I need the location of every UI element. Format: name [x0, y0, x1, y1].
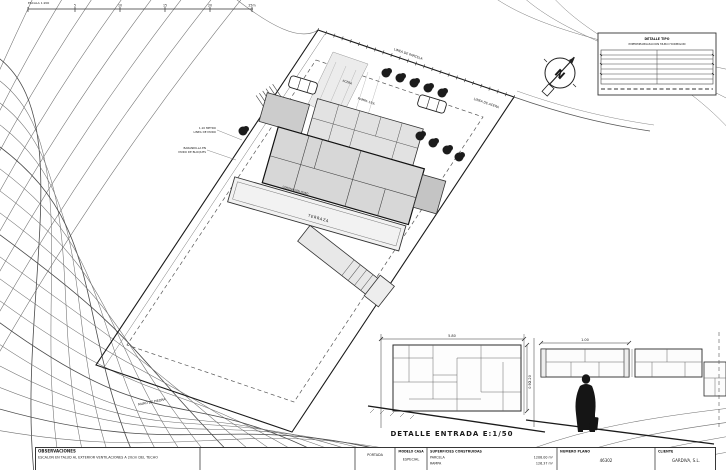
waterproofing-detail-box: DETALLE TIPO IMPERMEABILIZACION MURO HOR…	[598, 33, 716, 95]
scale-caption: ESCALA 1:200	[28, 1, 49, 5]
detail-entrada-title: DETALLE ENTRADA E:1/50	[390, 430, 513, 438]
elevation-entrance-wall: 5.80 2.20	[368, 334, 545, 432]
portada-label: PORTADA	[367, 453, 383, 457]
cliente-value: GARDIVA, S.L.	[672, 458, 700, 463]
rampa-label: RAMPA 15%	[357, 96, 375, 106]
shrub-symbol	[459, 152, 465, 158]
linea-acera-label: LINEA DE ACERA	[473, 97, 500, 110]
contour-line	[0, 166, 169, 470]
shrub-symbol	[428, 83, 434, 89]
superficies-row-name: PARCELA	[430, 456, 445, 460]
contour-line	[0, 0, 244, 358]
shrub-symbol	[420, 131, 426, 137]
contour-line	[0, 0, 34, 78]
shrub-symbol	[442, 88, 448, 94]
contour-line	[0, 56, 41, 470]
ground-line	[526, 420, 714, 444]
north-arrow: N	[542, 57, 576, 96]
wall-width-dim: 5.80	[448, 334, 456, 338]
superficies-row-name: RAMPA	[430, 462, 442, 466]
shrub-symbol	[400, 73, 406, 79]
person-silhouette	[576, 374, 599, 432]
svg-text:IMPERMEABILIZACION MURO HORMIG: IMPERMEABILIZACION MURO HORMIGON	[628, 42, 685, 46]
svg-text:MURO DE BLOQUES: MURO DE BLOQUES	[178, 150, 206, 154]
svg-text:15: 15	[163, 4, 167, 8]
svg-text:5: 5	[74, 4, 76, 8]
observaciones-label: OBSERVACIONES	[38, 449, 76, 454]
superficies-label: SUPERFICIES CONSTRUIDAS	[430, 450, 482, 454]
contour-line	[0, 100, 88, 470]
svg-text:10: 10	[118, 4, 122, 8]
car-symbol	[288, 75, 318, 95]
modelo-label: MODELO CASA	[398, 450, 424, 454]
contour-line	[0, 122, 115, 470]
numero-plano-value: 46302	[600, 458, 613, 463]
svg-text:LINEA DE MURO: LINEA DE MURO	[194, 130, 217, 134]
numero-plano-label: NUMERO PLANO	[560, 450, 590, 454]
shrub-symbol	[386, 68, 392, 74]
elevation-fence: 0.90 1.00	[526, 332, 726, 444]
cliente-label: CLIENTE	[658, 450, 674, 454]
contour-line	[0, 276, 304, 470]
svg-text:20: 20	[208, 4, 212, 8]
shrub-symbol	[447, 145, 453, 151]
superficies-row-value: 126.37 m²	[536, 462, 554, 466]
shrub-symbol	[433, 138, 439, 144]
building-plan: TERRAZA CORONACION MURO	[228, 83, 458, 258]
fence-panel-dim: 1.00	[581, 338, 589, 342]
contour-line	[0, 254, 277, 470]
title-block: OBSERVACIONES ESCALON EN TALUD AL EXTERI…	[36, 448, 716, 470]
detail-box-title: DETALLE TIPO	[645, 37, 670, 41]
contour-line	[0, 0, 214, 318]
architectural-site-plan-sheet: TERRAZA CORONACION MURO LINEA DE PARCELA…	[0, 0, 726, 470]
shrub-symbol	[414, 78, 420, 84]
scale-bar: ESCALA 1:200 5 10 15 20 25m	[28, 1, 256, 12]
modelo-value: ESPECIAL	[403, 458, 420, 462]
contour-line	[0, 0, 154, 238]
observaciones-text: ESCALON EN TALUD AL EXTERIOR VENTILACION…	[38, 456, 158, 460]
contour-line	[0, 0, 64, 118]
superficies-row-value: 1208.00 m²	[534, 456, 554, 460]
contour-line	[0, 0, 94, 158]
contour-line	[0, 144, 142, 470]
shrub-symbol	[243, 126, 249, 132]
site-plan-svg: TERRAZA CORONACION MURO LINEA DE PARCELA…	[0, 0, 726, 470]
fence-height-dim: 0.90	[528, 381, 532, 388]
svg-text:25m: 25m	[248, 4, 255, 8]
